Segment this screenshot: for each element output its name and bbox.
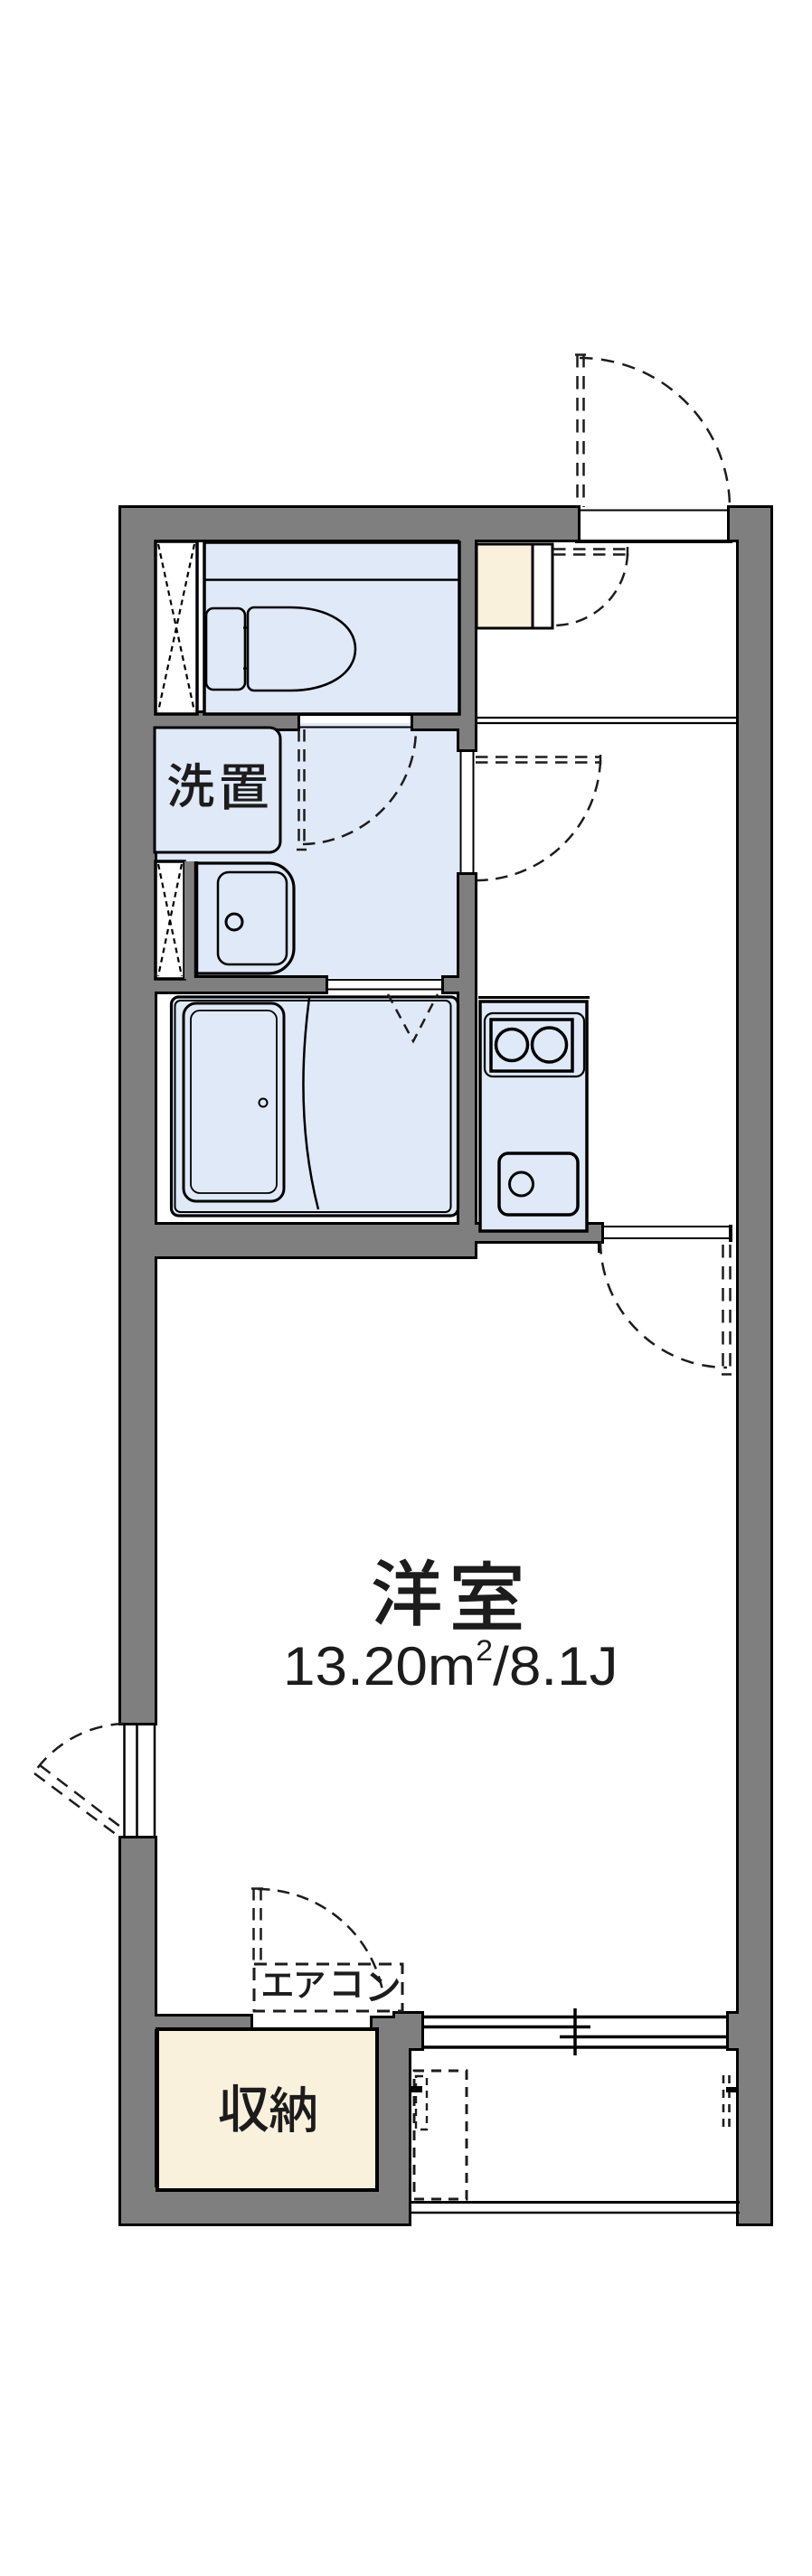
svg-text:13.20m2/8.1J: 13.20m2/8.1J <box>283 1635 618 1697</box>
